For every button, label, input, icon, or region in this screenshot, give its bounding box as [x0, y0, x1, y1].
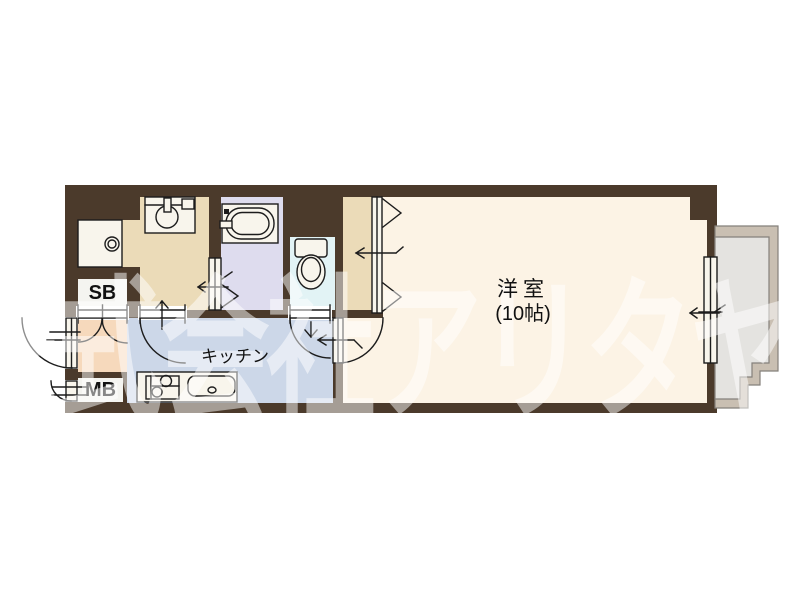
bathtub-faucet: [220, 221, 232, 228]
closet-door-chevrons: [383, 199, 401, 311]
floor-plan: SB MB: [0, 0, 800, 600]
toilet-door-arc: [290, 318, 330, 358]
shoebox-door-arcs: [78, 318, 127, 343]
plan-linework: [0, 0, 800, 600]
toilet-door-arrow: [305, 322, 317, 337]
vanity-cabinet: [182, 199, 194, 209]
balcony-floor: [715, 237, 769, 399]
vanity-faucet: [164, 198, 171, 212]
meterbox-door: [66, 381, 77, 401]
bathtub-fitting: [224, 209, 229, 214]
